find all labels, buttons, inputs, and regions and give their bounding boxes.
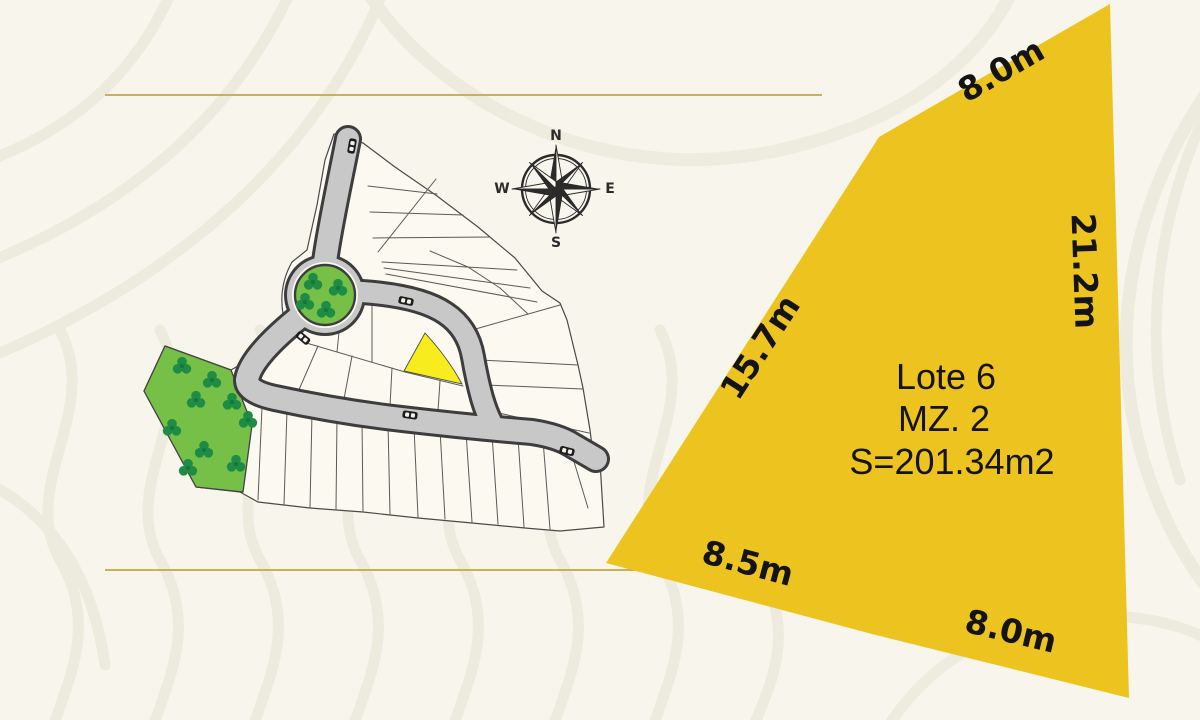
- compass-letter-n: N: [550, 128, 562, 144]
- flyer-canvas: N E S W 8.0m 21.2m 15.7m 8.5m 8.0m Lote …: [0, 0, 1200, 720]
- roundabout: [287, 257, 363, 333]
- dim-label-right: 21.2m: [1063, 212, 1106, 329]
- lot-name: Lote 6: [896, 356, 996, 397]
- compass-letter-s: S: [551, 235, 561, 251]
- flyer-graphic: N E S W 8.0m 21.2m 15.7m 8.5m 8.0m Lote …: [0, 0, 1200, 720]
- compass-letter-e: E: [605, 181, 615, 197]
- lot-block: MZ. 2: [898, 398, 990, 439]
- compass-letter-w: W: [494, 181, 509, 197]
- lot-area: S=201.34m2: [849, 441, 1054, 482]
